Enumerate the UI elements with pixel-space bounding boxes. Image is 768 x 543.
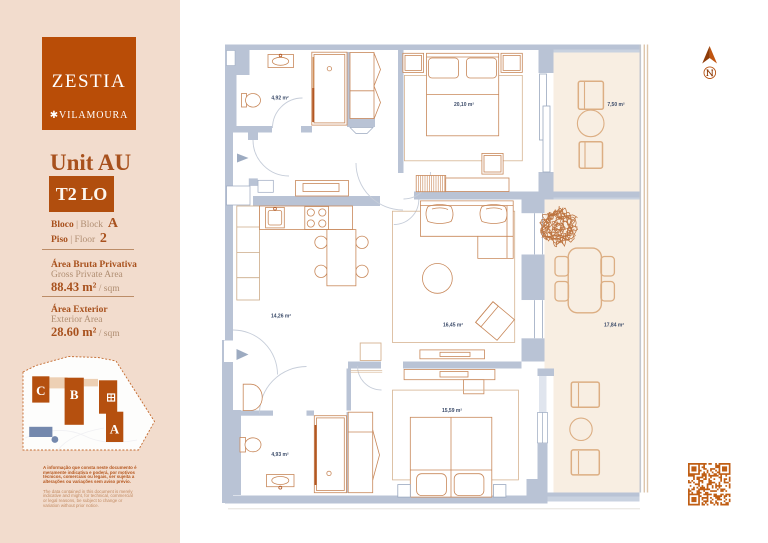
svg-text:B: B	[70, 387, 79, 402]
svg-text:A: A	[110, 422, 120, 437]
svg-text:16,45 m²: 16,45 m²	[443, 323, 463, 329]
svg-text:4,93 m²: 4,93 m²	[271, 452, 289, 458]
svg-text:15,59 m²: 15,59 m²	[442, 408, 462, 414]
svg-text:17,84 m²: 17,84 m²	[604, 323, 624, 329]
svg-text:4,92 m²: 4,92 m²	[271, 96, 289, 102]
svg-text:C: C	[36, 383, 45, 398]
svg-text:14,26 m²: 14,26 m²	[271, 314, 291, 320]
svg-text:7,50 m²: 7,50 m²	[607, 102, 625, 108]
svg-text:20,10 m²: 20,10 m²	[454, 102, 474, 108]
